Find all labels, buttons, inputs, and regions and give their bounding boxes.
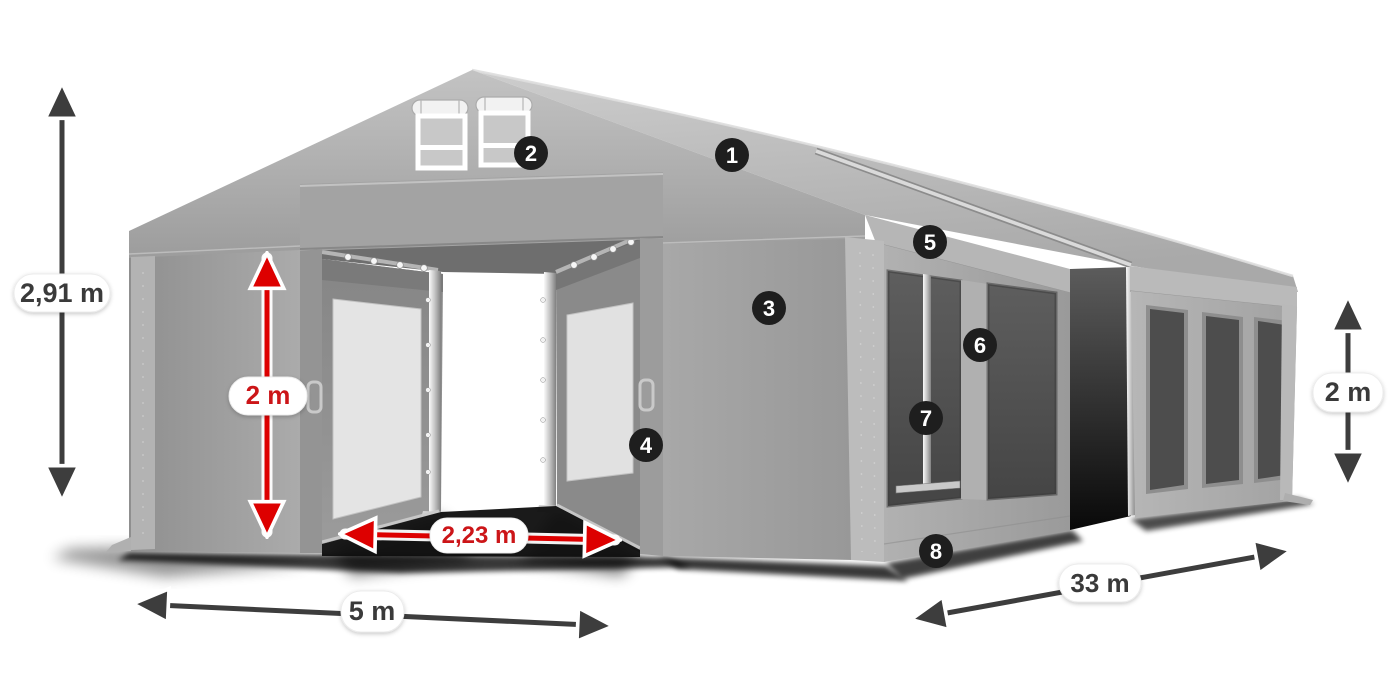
badge-4: 4: [629, 428, 663, 462]
side-wall-rear-section: [1130, 266, 1313, 518]
door-pole: [544, 272, 556, 509]
mesh-window: [1150, 309, 1184, 490]
badge-7: 7: [909, 401, 943, 435]
tent-diagram-svg: 2,91 m 2 m 2,23 m 5 m 33 m 2 m 1: [0, 0, 1400, 700]
door-window: [333, 299, 421, 519]
dimension-label-entrance-height: 2 m: [229, 377, 307, 415]
badge-1: 1: [715, 138, 749, 172]
badge-6: 6: [963, 328, 997, 362]
entrance-width-value: 2,23 m: [442, 522, 517, 549]
side-length-value: 33 m: [1070, 568, 1129, 598]
svg-text:7: 7: [920, 406, 932, 431]
mesh-window: [1206, 316, 1239, 484]
entrance: [322, 236, 640, 557]
side-height-value: 2 m: [1325, 377, 1372, 407]
svg-text:8: 8: [930, 539, 942, 564]
total-height-value: 2,91 m: [20, 278, 104, 308]
corner-column: [845, 237, 884, 562]
badge-3: 3: [752, 291, 786, 325]
dimension-label-side-height: 2 m: [1313, 373, 1383, 412]
badge-5: 5: [913, 225, 947, 259]
svg-text:4: 4: [640, 433, 653, 458]
dimension-label-total-height: 2,91 m: [14, 274, 110, 312]
module-gap: [1070, 267, 1136, 530]
front-wall-right: [663, 237, 884, 562]
front-width-value: 5 m: [349, 596, 396, 626]
entrance-height-value: 2 m: [246, 380, 291, 410]
badge-2: 2: [514, 136, 548, 170]
door-pole: [429, 270, 441, 515]
entrance-right-door: [537, 236, 640, 553]
svg-text:5: 5: [924, 230, 936, 255]
dimension-label-front-width: 5 m: [341, 591, 404, 632]
tent-illustration: [106, 70, 1313, 562]
roof-vent-left: [412, 100, 468, 168]
entrance-left-door: [322, 252, 449, 544]
dimension-label-entrance-width: 2,23 m: [430, 518, 528, 553]
svg-text:2: 2: [525, 141, 537, 166]
tent-diagram: 2,91 m 2 m 2,23 m 5 m 33 m 2 m 1: [0, 0, 1400, 700]
interior-pole: [923, 274, 931, 489]
badge-8: 8: [919, 534, 953, 568]
door-window: [567, 303, 633, 481]
dimension-label-side-length: 33 m: [1059, 564, 1141, 602]
svg-text:6: 6: [974, 333, 986, 358]
svg-text:3: 3: [763, 296, 775, 321]
side-wall-front-section: [865, 215, 1070, 562]
corner-column: [1280, 304, 1297, 500]
mesh-window: [988, 284, 1056, 499]
svg-text:1: 1: [726, 143, 738, 168]
